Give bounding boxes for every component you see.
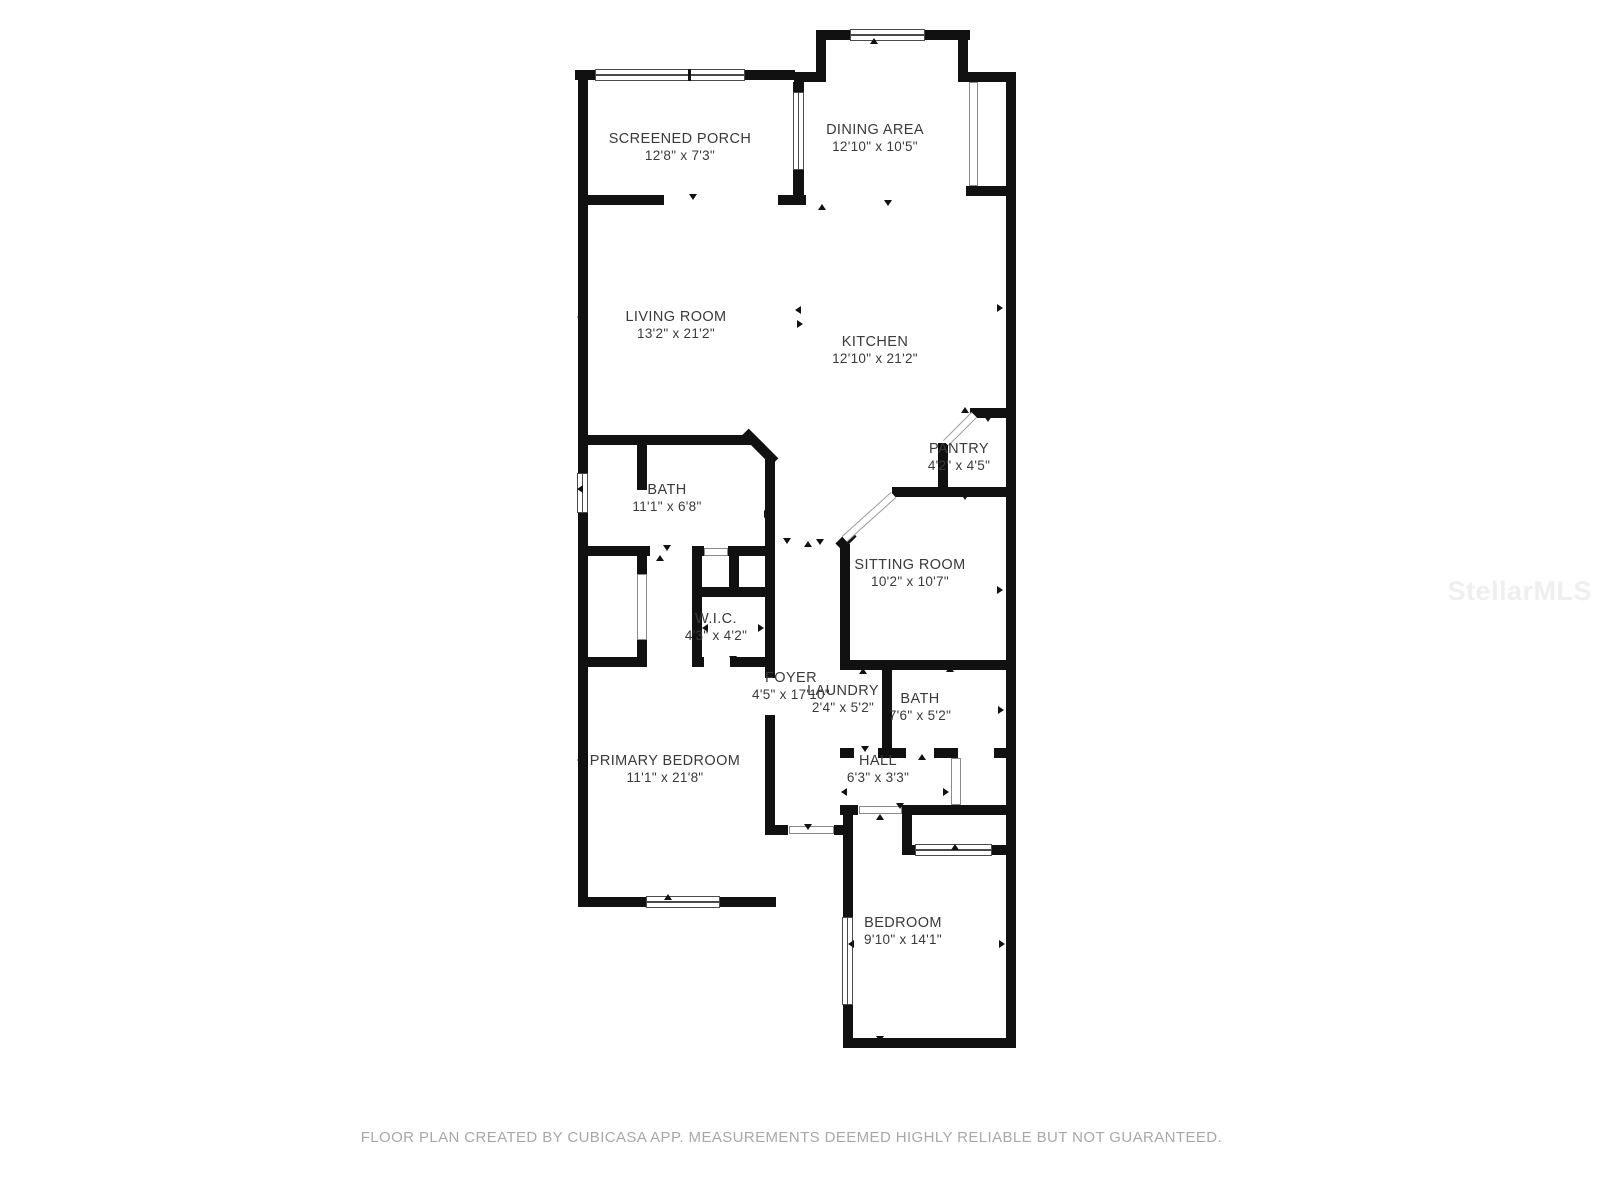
- room-dimensions: 4'3" x 4'2": [685, 628, 747, 643]
- wall-segment: [794, 72, 826, 82]
- room-label-screened-porch: SCREENED PORCH12'8" x 7'3": [609, 131, 752, 163]
- measure-marker: [943, 788, 949, 796]
- measure-marker: [884, 200, 892, 206]
- measure-marker: [848, 940, 854, 948]
- room-name: LIVING ROOM: [625, 309, 726, 325]
- measure-marker: [896, 803, 904, 809]
- wall-segment: [765, 556, 775, 667]
- room-name: LAUNDRY: [807, 683, 879, 699]
- window: [595, 69, 745, 81]
- wall-segment: [966, 186, 1008, 196]
- room-label-sitting-room: SITTING ROOM10'2" x 10'7": [854, 557, 965, 589]
- measure-marker: [795, 306, 801, 314]
- window-pane-line: [582, 474, 584, 512]
- wall-segment: [637, 546, 647, 576]
- measure-marker: [861, 746, 869, 752]
- window-pane-line: [851, 34, 924, 36]
- wall-segment: [934, 748, 958, 758]
- measure-marker: [578, 136, 584, 144]
- wall-segment: [692, 657, 704, 667]
- window: [850, 29, 925, 41]
- measure-marker: [999, 940, 1005, 948]
- room-label-hall: HALL6'3" x 3'3": [847, 753, 909, 785]
- floor-plan-disclaimer: FLOOR PLAN CREATED BY CUBICASA APP. MEAS…: [361, 1129, 1222, 1146]
- measure-marker: [859, 668, 867, 674]
- measure-marker: [961, 494, 969, 500]
- room-dimensions: 12'8" x 7'3": [609, 148, 752, 163]
- measure-marker: [997, 304, 1003, 312]
- wall-segment: [843, 1038, 1016, 1048]
- measure-marker: [656, 555, 664, 561]
- measure-marker: [876, 814, 884, 820]
- room-name: PANTRY: [928, 441, 990, 457]
- room-dimensions: 11'1" x 6'8": [632, 499, 701, 514]
- open-door: [842, 492, 896, 542]
- measure-marker: [816, 539, 824, 545]
- window-divider: [688, 69, 691, 81]
- room-name: W.I.C.: [685, 611, 747, 627]
- measure-marker: [870, 38, 878, 44]
- wall-segment: [578, 657, 647, 667]
- measure-marker: [577, 313, 583, 321]
- measure-marker: [844, 600, 850, 608]
- wall-segment: [765, 458, 775, 556]
- wall-segment: [994, 748, 1016, 758]
- window: [793, 92, 804, 170]
- wall-segment: [578, 511, 588, 907]
- room-dimensions: 7'6" x 5'2": [889, 708, 951, 723]
- room-dimensions: 10'2" x 10'7": [854, 574, 965, 589]
- room-label-dining-area: DINING AREA12'10" x 10'5": [826, 122, 924, 154]
- room-label-pantry: PANTRY4'2" x 4'5": [928, 441, 990, 473]
- stellar-mls-watermark: StellarMLS: [1447, 576, 1592, 607]
- window-pane-line: [647, 901, 719, 903]
- room-label-bath-lower: BATH7'6" x 5'2": [889, 691, 951, 723]
- measure-marker: [946, 666, 954, 672]
- measure-marker: [841, 788, 847, 796]
- room-dimensions: 4'2" x 4'5": [928, 458, 990, 473]
- room-label-laundry: LAUNDRY2'4" x 5'2": [807, 683, 879, 715]
- room-name: KITCHEN: [832, 334, 918, 350]
- wall-segment: [1006, 72, 1016, 1048]
- room-dimensions: 12'10" x 21'2": [832, 351, 918, 366]
- window: [969, 82, 978, 186]
- measure-marker: [818, 204, 826, 210]
- room-label-primary-bedroom: PRIMARY BEDROOM11'1" x 21'8": [590, 753, 741, 785]
- measure-marker: [984, 416, 992, 422]
- wall-segment: [902, 805, 1006, 815]
- room-label-living-room: LIVING ROOM13'2" x 21'2": [625, 309, 726, 341]
- measure-marker: [783, 538, 791, 544]
- wall-segment: [578, 435, 752, 445]
- window: [646, 896, 720, 908]
- door: [951, 758, 961, 805]
- wall-segment: [765, 825, 788, 835]
- wall-segment: [692, 587, 775, 597]
- measure-marker: [961, 407, 969, 413]
- door: [704, 548, 728, 556]
- wall-segment: [892, 487, 1016, 497]
- room-name: HALL: [847, 753, 909, 769]
- wall-segment: [578, 195, 664, 205]
- measure-marker: [918, 754, 926, 760]
- measure-marker: [951, 844, 959, 850]
- room-dimensions: 6'3" x 3'3": [847, 770, 909, 785]
- room-label-wic: W.I.C.4'3" x 4'2": [685, 611, 747, 643]
- window-pane-line: [596, 74, 744, 76]
- room-dimensions: 11'1" x 21'8": [590, 770, 741, 785]
- room-name: BEDROOM: [864, 915, 942, 931]
- room-label-kitchen: KITCHEN12'10" x 21'2": [832, 334, 918, 366]
- room-dimensions: 2'4" x 5'2": [807, 700, 879, 715]
- wall-segment: [765, 715, 775, 827]
- room-name: SITTING ROOM: [854, 557, 965, 573]
- measure-marker: [689, 194, 697, 200]
- room-name: DINING AREA: [826, 122, 924, 138]
- room-name: BATH: [632, 482, 701, 498]
- room-name: BATH: [889, 691, 951, 707]
- room-name: SCREENED PORCH: [609, 131, 752, 147]
- floor-plan: FLOOR PLAN CREATED BY CUBICASA APP. MEAS…: [0, 0, 1600, 1200]
- wall-segment: [970, 408, 1016, 418]
- measure-marker: [577, 485, 583, 493]
- measure-marker: [758, 624, 764, 632]
- measure-marker: [764, 510, 770, 518]
- measure-marker: [998, 706, 1004, 714]
- room-label-bath-upper: BATH11'1" x 6'8": [632, 482, 701, 514]
- room-label-bedroom: BEDROOM9'10" x 14'1": [864, 915, 942, 947]
- measure-marker: [577, 756, 583, 764]
- window: [842, 917, 853, 1005]
- measure-marker: [663, 545, 671, 551]
- wall-bevel: [742, 429, 779, 466]
- room-name: PRIMARY BEDROOM: [590, 753, 741, 769]
- measure-marker: [664, 894, 672, 900]
- window: [577, 473, 588, 513]
- measure-marker: [729, 656, 737, 662]
- wall-segment: [578, 70, 588, 475]
- window-pane-line: [798, 93, 800, 169]
- room-dimensions: 12'10" x 10'5": [826, 139, 924, 154]
- room-dimensions: 9'10" x 14'1": [864, 932, 942, 947]
- wall-segment: [718, 897, 776, 907]
- room-dimensions: 13'2" x 21'2": [625, 326, 726, 341]
- door: [637, 574, 647, 640]
- wall-segment: [578, 897, 648, 907]
- window-pane-line: [847, 918, 849, 1004]
- wall-segment: [778, 195, 806, 205]
- measure-marker: [804, 824, 812, 830]
- measure-marker: [876, 1036, 884, 1042]
- measure-marker: [797, 320, 803, 328]
- measure-marker: [997, 586, 1003, 594]
- wall-segment: [843, 810, 853, 920]
- measure-marker: [804, 541, 812, 547]
